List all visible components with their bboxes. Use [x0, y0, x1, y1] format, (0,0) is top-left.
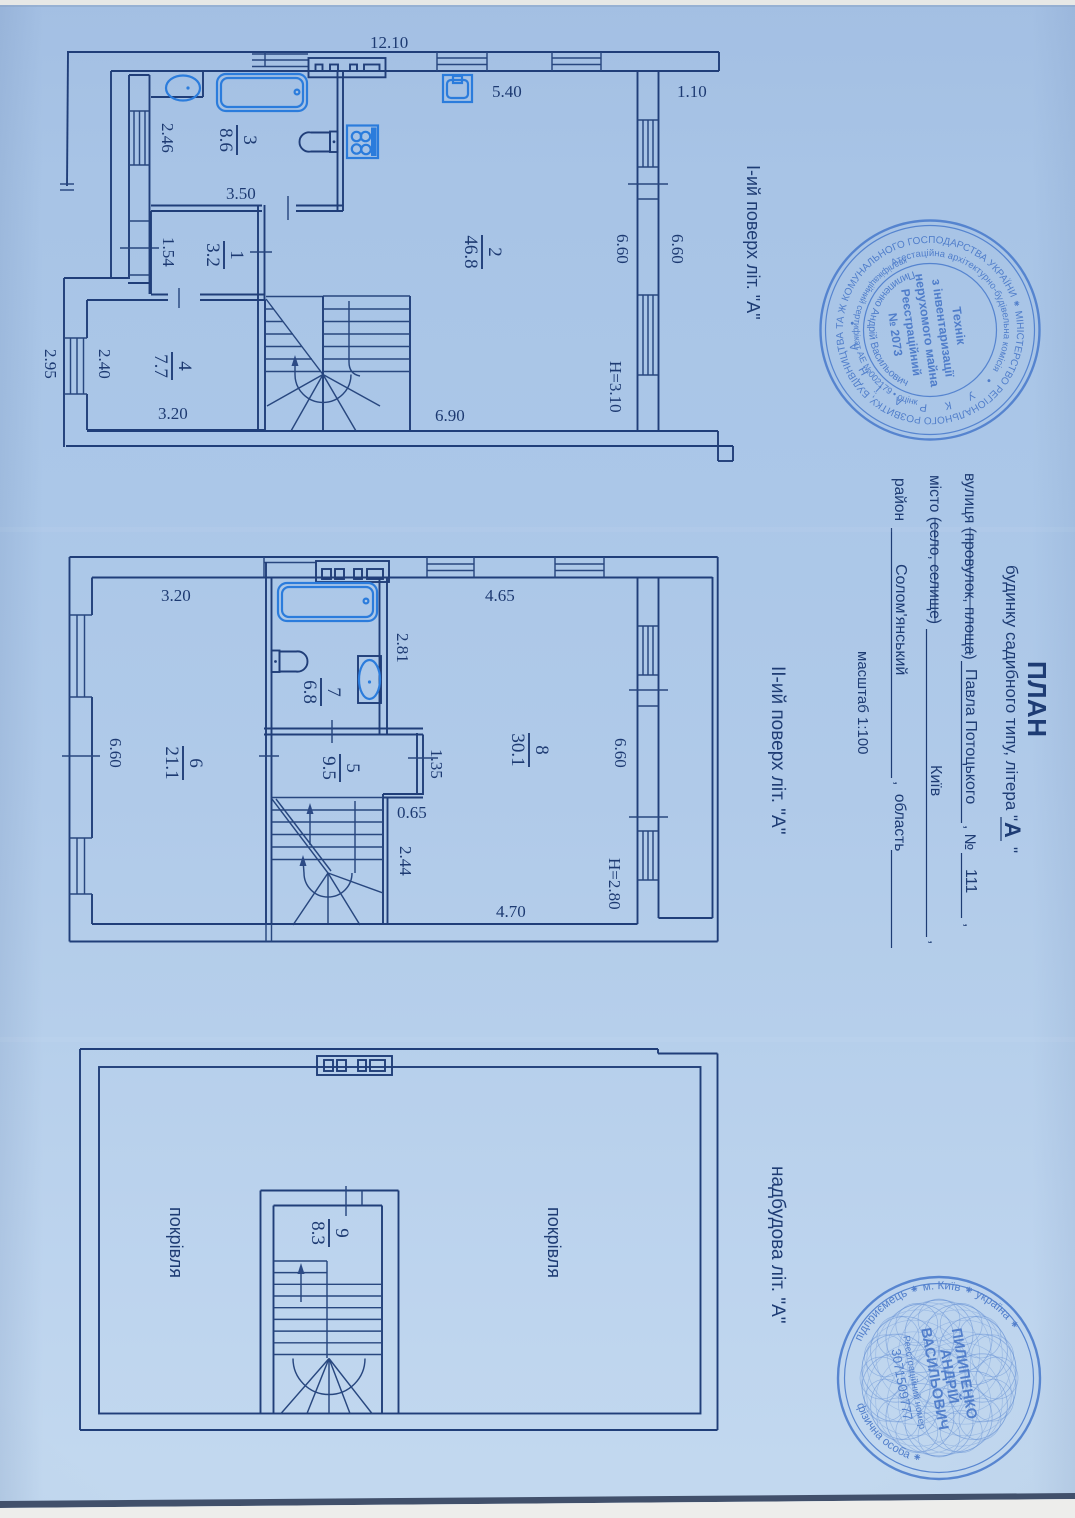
svg-text:надбудова літ. "А": надбудова літ. "А": [767, 1166, 788, 1323]
svg-text:будинку садибного типу, літера: будинку садибного типу, літера ": [1002, 565, 1021, 821]
svg-text:2.40: 2.40: [95, 349, 114, 379]
svg-text:H=2.80: H=2.80: [605, 858, 624, 910]
svg-text:масштаб 1:100: масштаб 1:100: [854, 651, 871, 755]
svg-text:,: ,: [961, 923, 978, 927]
svg-text:, №: , №: [961, 825, 978, 851]
svg-text:46.8: 46.8: [460, 235, 481, 268]
svg-text:2.44: 2.44: [396, 846, 415, 876]
svg-text:район: район: [891, 478, 908, 521]
svg-text:2.95: 2.95: [41, 349, 60, 379]
svg-text:H=3.10: H=3.10: [606, 361, 625, 413]
svg-text:6: 6: [185, 758, 206, 768]
svg-text:покрівля: покрівля: [544, 1207, 564, 1278]
svg-text:5: 5: [342, 763, 363, 773]
svg-text:6.60: 6.60: [613, 234, 632, 264]
svg-text:4.70: 4.70: [496, 902, 526, 921]
svg-text:1.35: 1.35: [427, 749, 446, 779]
svg-text:1: 1: [226, 250, 247, 260]
svg-text:Київ: Київ: [927, 765, 944, 796]
svg-text:А: А: [1000, 822, 1025, 838]
svg-text:30.1: 30.1: [507, 733, 528, 766]
svg-text:8.3: 8.3: [307, 1221, 328, 1245]
svg-text:3.50: 3.50: [226, 184, 256, 203]
svg-text:Павла Потоцького: Павла Потоцького: [962, 669, 979, 804]
svg-text:5.40: 5.40: [492, 82, 522, 101]
svg-text:8: 8: [531, 745, 552, 755]
svg-text:3.20: 3.20: [158, 404, 188, 423]
svg-text:6.8: 6.8: [299, 680, 320, 704]
svg-text:3: 3: [239, 135, 260, 145]
svg-text:ІІ-ий поверх літ. "А": ІІ-ий поверх літ. "А": [767, 666, 788, 834]
svg-text:кваліфікаційний сертифікат АЕ: кваліфікаційний сертифікат АЕ №002179 • …: [852, 0, 1075, 407]
svg-text:9.5: 9.5: [318, 756, 339, 780]
svg-text:": ": [1002, 847, 1021, 853]
svg-text:, область: , область: [891, 781, 908, 851]
svg-text:3.20: 3.20: [161, 586, 191, 605]
svg-text:6.90: 6.90: [435, 406, 465, 425]
svg-text:Солом'янський: Солом'янський: [892, 564, 909, 675]
svg-text:21.1: 21.1: [161, 746, 182, 779]
svg-text:7.7: 7.7: [150, 354, 171, 378]
svg-text:6.60: 6.60: [106, 738, 125, 768]
svg-text:12.10: 12.10: [370, 33, 408, 52]
svg-text:1.10: 1.10: [677, 82, 707, 101]
svg-text:6.60: 6.60: [668, 234, 687, 264]
svg-text:І-ий поверх літ. "А": І-ий поверх літ. "А": [743, 165, 763, 320]
svg-text:4.65: 4.65: [485, 586, 515, 605]
svg-text:2.81: 2.81: [393, 633, 412, 663]
svg-text:покрівля: покрівля: [166, 1207, 186, 1278]
svg-text:6.60: 6.60: [611, 738, 630, 768]
svg-text:1.54: 1.54: [159, 237, 178, 267]
svg-text:9: 9: [331, 1228, 352, 1238]
svg-text:111: 111: [962, 869, 979, 893]
svg-text:0.65: 0.65: [397, 803, 427, 822]
svg-text:2: 2: [484, 247, 505, 257]
svg-text:8.6: 8.6: [215, 128, 236, 152]
svg-text:ПЛАН: ПЛАН: [1022, 661, 1052, 737]
svg-text:2.46: 2.46: [158, 123, 177, 153]
svg-text:3.2: 3.2: [202, 243, 223, 267]
svg-text:4: 4: [174, 361, 195, 371]
svg-text:,: ,: [926, 940, 943, 944]
svg-text:7: 7: [323, 687, 344, 697]
